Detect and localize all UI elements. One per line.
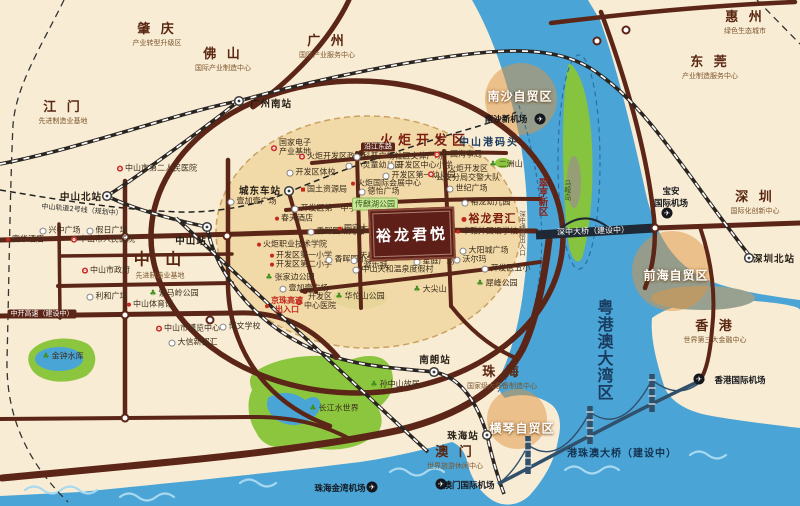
building-dot-icon <box>127 303 131 307</box>
freetrade-zone-label: 南沙自贸区 <box>487 88 552 105</box>
station-label: 珠海站 <box>447 428 479 442</box>
building-dot-icon <box>270 254 274 258</box>
poi-circle-icon <box>308 228 315 235</box>
building-dot-icon <box>456 230 460 234</box>
city-label: 广 州国际产业服务中心 <box>299 30 355 60</box>
building-dot-icon <box>351 182 355 186</box>
poi-circle-icon <box>169 339 176 346</box>
poi-label: ♣孙中山故居 <box>370 381 419 390</box>
city-name: 肇 庆 <box>133 18 182 37</box>
station-label: 深圳北站 <box>753 251 795 265</box>
poi-label: ♣华佗山公园 <box>335 293 384 302</box>
poi-circle-icon <box>292 205 299 212</box>
poi-yulongjunhui: 裕龙君汇 <box>462 213 517 225</box>
station-label: 中山站 <box>175 233 207 247</box>
tree-icon: ♣ <box>309 405 316 413</box>
poi-circle-icon <box>326 256 333 263</box>
poi-label: 火炬职业技术学院 <box>257 241 327 250</box>
hospital-cross-icon <box>117 166 123 172</box>
poi-circle-icon <box>87 227 94 234</box>
city-subtitle: 世界旅游休闲中心 <box>427 461 483 471</box>
city-label: 佛 山国际产业制造中心 <box>195 43 251 73</box>
station-label: 中山北站 <box>60 189 102 203</box>
airport-label: 澳门国际机场 <box>443 479 494 491</box>
airport-label-line: 国际机场 <box>654 197 688 209</box>
poi-label: 德怡广场 <box>359 188 400 197</box>
area-label: 港珠澳大桥（建设中） <box>567 445 677 460</box>
poi-label: 开发区体校 <box>287 169 336 178</box>
tree-icon: ♣ <box>149 290 156 298</box>
poi-label: 中山市政府 <box>82 267 130 276</box>
bay-area-location-map: ✈✈✈✈✈ 肇 庆产业转型升级区佛 山国际产业制造中心广 州国际产业服务中心惠 … <box>0 0 800 506</box>
hospital-cross-icon <box>82 268 88 274</box>
building-square-icon <box>301 188 305 192</box>
poi-label-line: 公安分局交警大队 <box>436 174 500 183</box>
poi-label: ♣紫马岭公园 <box>149 290 198 299</box>
poi-circle-icon <box>87 293 94 300</box>
poi-circle-icon <box>346 162 353 169</box>
poi-label: 世纪广场 <box>447 185 488 194</box>
poi-label: 裕龙幼儿园 <box>462 199 511 208</box>
poi-label: 博文学校 <box>220 323 261 332</box>
poi-circle-icon <box>287 169 294 176</box>
poi-label-line: 中心医院 <box>304 302 336 311</box>
area-label: 粤港澳大湾区 <box>596 299 613 401</box>
poi-circle-icon <box>40 227 47 234</box>
area-label: 深中通道出入口 <box>518 210 525 256</box>
poi-label: 春天酒店 <box>275 215 313 224</box>
building-dot-icon <box>270 263 274 267</box>
area-label: 中开高速（建设中） <box>8 310 77 319</box>
tree-icon: ♣ <box>489 161 496 169</box>
poi-label: 京珠高速出入口 <box>265 297 303 315</box>
poi-circle-icon <box>388 162 395 169</box>
area-label: 中山港码头 <box>459 134 519 149</box>
airport-label: 南沙新机场 <box>485 113 528 125</box>
city-name: 中 山 <box>134 246 187 270</box>
area-label: 沿江东路 <box>361 143 395 152</box>
poi-label-lines: 开发区中心医院 <box>304 293 336 311</box>
tree-icon: ♣ <box>265 274 272 282</box>
airport-label-line: 宝安 <box>654 185 688 197</box>
airport-label: 宝安国际机场 <box>654 185 688 209</box>
poi-label: 国土资源局 <box>301 186 347 195</box>
area-label: 翠亨新区 <box>537 178 548 216</box>
building-dot-icon <box>338 227 342 231</box>
hospital-cross-icon <box>156 326 162 332</box>
city-name: 珠 海 <box>467 361 537 380</box>
city-name: 东 莞 <box>682 51 738 70</box>
poi-label-lines: 京珠高速出入口 <box>271 297 303 315</box>
poi-label: ♣二洲山 <box>489 161 522 170</box>
poi-label: 中山市第二人民医院 <box>117 165 197 174</box>
city-name: 深 圳 <box>731 186 780 205</box>
poi-label: ♣犀峰公园 <box>476 280 517 289</box>
city-label: 深 圳国际化创新中心 <box>731 186 780 216</box>
poi-label: 中山体育馆 <box>127 301 173 310</box>
poi-label: ♣张家边公园 <box>265 274 314 283</box>
poi-label: 大信新都汇 <box>169 339 218 348</box>
red-dot-icon <box>462 217 467 222</box>
poi-label: 开发区五小 <box>482 265 531 274</box>
poi-circle-icon <box>462 199 469 206</box>
city-subtitle: 国际产业制造中心 <box>195 63 251 73</box>
city-subtitle: 先进制造业基地 <box>39 116 88 126</box>
city-label: 肇 庆产业转型升级区 <box>133 18 182 48</box>
poi-circle-icon <box>482 265 489 272</box>
city-subtitle: 世界第三大金融中心 <box>684 335 747 345</box>
city-label: 珠 海国家级大装备制造中心 <box>467 361 537 391</box>
hospital-cross-icon <box>299 154 305 160</box>
station-label: 南朗站 <box>419 352 451 366</box>
tree-icon: ♣ <box>476 280 483 288</box>
poi-circle-icon <box>280 285 287 292</box>
area-label: 马鞍岛 <box>563 180 571 201</box>
city-name: 澳 门 <box>427 441 483 460</box>
city-subtitle: 国家级大装备制造中心 <box>467 381 537 391</box>
poi-label: 兴中广场 <box>40 227 81 236</box>
poi-label: 富华酒店 <box>6 236 44 245</box>
poi-circle-icon <box>351 258 358 265</box>
poi-circle-icon <box>359 188 366 195</box>
hospital-cross-icon <box>434 152 440 158</box>
poi-circle-icon <box>220 323 227 330</box>
area-label: 中山轨道2号线（规划中） <box>41 201 123 218</box>
city-label: 中 山先进制造业基地 <box>134 246 187 281</box>
city-subtitle: 国际产业服务中心 <box>299 50 355 60</box>
city-name: 广 州 <box>299 30 355 49</box>
poi-label: ♣长江水世界 <box>309 405 358 414</box>
city-name: 江 门 <box>39 96 88 115</box>
city-subtitle: 国际化创新中心 <box>731 206 780 216</box>
city-label: 东 莞产业制造服务中心 <box>682 51 738 81</box>
station-label: 城东车站 <box>239 183 281 197</box>
tree-icon: ♣ <box>42 353 49 361</box>
airport-label: 香港国际机场 <box>714 374 765 386</box>
hospital-cross-icon <box>428 171 434 177</box>
city-name: 佛 山 <box>195 43 251 62</box>
poi-circle-icon <box>447 185 454 192</box>
hospital-cross-icon <box>271 145 277 151</box>
poi-label: 沃尔玛 <box>454 256 487 265</box>
tree-icon: ♣ <box>370 381 377 389</box>
poi-label: 壹加壹广场 <box>228 198 277 207</box>
poi-label: 开发区第一中学 <box>292 205 357 214</box>
poi-label: ♣金钟水库 <box>42 353 83 362</box>
city-label: 香 港世界第三大金融中心 <box>684 315 747 345</box>
city-label: 江 门先进制造业基地 <box>39 96 88 126</box>
poi-circle-icon <box>460 247 467 254</box>
airport-label: 珠海金湾机场 <box>314 482 365 494</box>
poi-label: ♣大尖山 <box>413 286 446 295</box>
poi-label: 中山天和温泉度假村 <box>353 266 434 275</box>
city-label: 澳 门世界旅游休闲中心 <box>427 441 483 471</box>
hospital-cross-icon <box>71 237 77 243</box>
building-dot-icon <box>6 238 10 242</box>
poi-circle-icon <box>353 266 360 273</box>
city-subtitle: 产业转型升级区 <box>133 38 182 48</box>
freetrade-zone-label: 横琴自贸区 <box>489 420 554 437</box>
city-subtitle: 绿色生态城市 <box>724 26 766 36</box>
poi-circle-icon <box>354 153 361 160</box>
poi-label-line: 出入口 <box>271 306 303 315</box>
building-dot-icon <box>275 217 279 221</box>
city-subtitle: 产业制造服务中心 <box>682 71 738 81</box>
project-marker-yulongjunyue: 裕龙君悦 <box>368 207 456 262</box>
tree-icon: ♣ <box>413 286 420 294</box>
city-label: 惠 州绿色生态城市 <box>724 6 766 36</box>
tree-icon: ♣ <box>335 293 342 301</box>
poi-label: 中山市人民医院 <box>71 236 135 245</box>
poi-label: 中国海事局 <box>434 151 482 160</box>
city-name: 惠 州 <box>724 6 766 25</box>
station-label: 广州南站 <box>250 96 292 110</box>
area-label: 深中大桥（建设中） <box>557 224 629 238</box>
poi-label: 利和广场 <box>87 293 128 302</box>
poi-label: 中山市博览中心 <box>156 325 220 334</box>
poi-label: 开发区第二小学 <box>270 261 332 270</box>
building-dot-icon <box>257 243 261 247</box>
interchange-icon <box>265 304 269 308</box>
city-name: 香 港 <box>684 315 747 334</box>
freetrade-zone-label: 前海自贸区 <box>643 267 708 284</box>
poi-circle-icon <box>228 198 235 205</box>
poi-label: 卓雅外国语学校 <box>456 228 518 237</box>
city-subtitle: 先进制造业基地 <box>134 271 187 281</box>
project-name: 裕龙君悦 <box>376 222 449 246</box>
